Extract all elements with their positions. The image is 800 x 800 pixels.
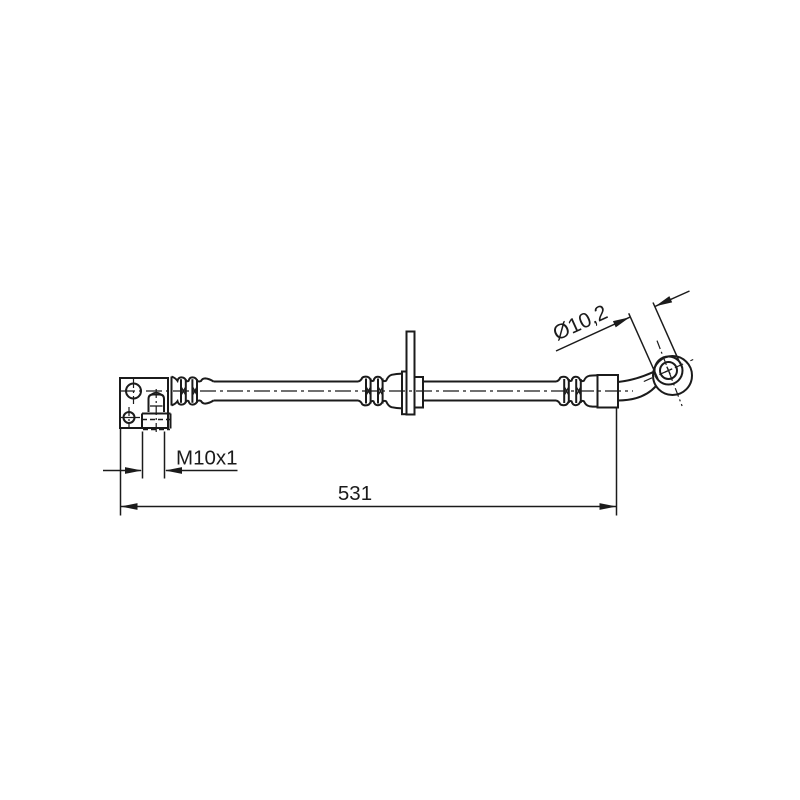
arrowhead xyxy=(654,296,672,309)
bend-tube xyxy=(618,372,656,400)
extension-line-2 xyxy=(653,303,682,369)
thread-label: M10x1 xyxy=(176,447,238,470)
tube-top xyxy=(618,372,653,382)
arrowhead xyxy=(613,314,631,327)
sleeve-profile-top xyxy=(358,374,402,382)
brake-hose-drawing-page: Ø10,2 M10x1 531 xyxy=(0,0,800,800)
arrowhead xyxy=(121,503,138,510)
arrowhead xyxy=(125,467,142,474)
dimension-diameter: Ø10,2 xyxy=(550,291,690,379)
tube-bottom xyxy=(618,386,656,400)
extension-line-1 xyxy=(629,313,658,379)
left-mounting-bracket xyxy=(119,378,168,429)
banjo-center-mark xyxy=(665,367,672,375)
sleeve-profile-bottom xyxy=(358,401,402,409)
length-label: 531 xyxy=(338,482,372,505)
crimp-marks xyxy=(182,388,197,395)
bracket-tab xyxy=(407,332,415,415)
brake-hose-technical-drawing: Ø10,2 M10x1 531 xyxy=(0,0,800,800)
banjo-body-circle xyxy=(653,356,692,395)
dimension-thread: M10x1 xyxy=(103,432,238,479)
bracket-collar xyxy=(415,377,424,408)
arrowhead xyxy=(600,503,617,510)
middle-mounting-bracket xyxy=(358,332,423,415)
diameter-label: Ø10,2 xyxy=(550,301,612,346)
